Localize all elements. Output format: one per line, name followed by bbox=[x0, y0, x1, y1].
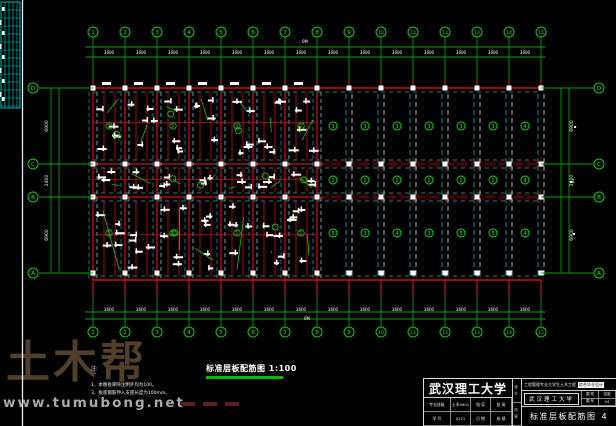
svg-text:13: 13 bbox=[474, 30, 480, 36]
svg-text:3600: 3600 bbox=[168, 50, 179, 55]
side-label-content: 内 容 bbox=[513, 403, 521, 426]
svg-text:3600: 3600 bbox=[136, 307, 147, 312]
notes-heading: 注: bbox=[91, 365, 170, 374]
svg-text:3600: 3600 bbox=[360, 50, 371, 55]
info-cell: 0121 bbox=[451, 412, 471, 426]
svg-text:4: 4 bbox=[395, 231, 398, 237]
svg-text:1: 1 bbox=[300, 231, 303, 236]
svg-text:11: 11 bbox=[410, 330, 416, 336]
svg-text:2: 2 bbox=[236, 124, 239, 129]
drawing-title-underline bbox=[206, 376, 283, 379]
svg-text:3600: 3600 bbox=[520, 307, 531, 312]
sheet-meta-cells: 图 别 结施 图 号 04 bbox=[581, 391, 616, 406]
svg-text:3: 3 bbox=[395, 124, 398, 130]
svg-text:3600: 3600 bbox=[488, 50, 499, 55]
svg-text:3: 3 bbox=[427, 124, 430, 130]
svg-text:3600: 3600 bbox=[232, 307, 243, 312]
svg-text:3600: 3600 bbox=[296, 307, 307, 312]
drawing-scale-label: 1:100 bbox=[269, 364, 297, 373]
sheet-title-row: 标准层板配筋图 4 bbox=[522, 407, 616, 426]
svg-text:2: 2 bbox=[300, 124, 303, 129]
svg-text:B: B bbox=[597, 195, 601, 201]
meta-cell: 结施 bbox=[599, 391, 616, 399]
svg-text:2: 2 bbox=[108, 124, 111, 129]
drawing-title: 标准层板配筋图 1:100 bbox=[206, 363, 297, 374]
svg-text:2: 2 bbox=[123, 330, 127, 336]
meta-cell: 04 bbox=[599, 399, 616, 407]
drawing-notes: 注: 1、本图板厚除注明外均为100。 3、板底钢筋伸入支座长度为100mm。 bbox=[91, 365, 170, 398]
svg-text:11: 11 bbox=[410, 30, 416, 36]
svg-text:3600: 3600 bbox=[520, 50, 531, 55]
title-block-info-grid: 专业班级 土木0901 指 导 批 阅 学 号 0121 日 期 成 绩 bbox=[424, 398, 512, 426]
cad-drawing-viewport: 土木帮 www.tumubong.net 3333334111111453435… bbox=[0, 0, 616, 426]
svg-text:3600: 3600 bbox=[264, 50, 275, 55]
svg-text:3600: 3600 bbox=[200, 50, 211, 55]
title-block-mid-row: 武汉理工大学 图 别 结施 图 号 04 bbox=[522, 391, 616, 407]
svg-text:3: 3 bbox=[331, 124, 334, 130]
svg-text:▪: ▪ bbox=[574, 124, 577, 129]
svg-text:3600: 3600 bbox=[360, 307, 371, 312]
info-cell: 土木0901 bbox=[451, 398, 471, 412]
svg-text:3600: 3600 bbox=[104, 50, 115, 55]
svg-text:3600: 3600 bbox=[200, 307, 211, 312]
svg-text:3600: 3600 bbox=[232, 50, 243, 55]
svg-text:1: 1 bbox=[172, 231, 175, 236]
svg-text:3600: 3600 bbox=[392, 50, 403, 55]
svg-text:1: 1 bbox=[91, 330, 95, 336]
svg-text:10: 10 bbox=[378, 30, 384, 36]
svg-text:12: 12 bbox=[442, 30, 448, 36]
svg-text:▪: ▪ bbox=[573, 231, 576, 236]
svg-text:A: A bbox=[31, 271, 35, 277]
svg-text:B: B bbox=[31, 195, 35, 201]
svg-text:3: 3 bbox=[363, 124, 366, 130]
info-cell: 学 号 bbox=[424, 412, 451, 426]
info-cell: 专业班级 bbox=[424, 398, 451, 412]
svg-text:3600: 3600 bbox=[456, 50, 467, 55]
svg-text:0M: 0M bbox=[302, 39, 309, 44]
svg-text:8: 8 bbox=[315, 30, 319, 36]
svg-text:4: 4 bbox=[187, 30, 191, 36]
svg-text:4: 4 bbox=[523, 178, 526, 184]
note-line: 1、本图板厚除注明外均为100。 bbox=[91, 382, 170, 390]
meta-cell: 图 别 bbox=[582, 391, 599, 399]
svg-text:3: 3 bbox=[459, 124, 462, 130]
svg-text:8: 8 bbox=[315, 330, 319, 336]
svg-text:5: 5 bbox=[459, 231, 462, 237]
svg-text:3: 3 bbox=[155, 330, 159, 336]
svg-text:3600: 3600 bbox=[264, 307, 275, 312]
svg-text:D: D bbox=[31, 86, 35, 92]
svg-text:4: 4 bbox=[187, 330, 191, 336]
svg-text:10: 10 bbox=[378, 330, 384, 336]
svg-text:1: 1 bbox=[236, 231, 239, 236]
svg-text:1: 1 bbox=[331, 178, 334, 184]
svg-text:3600: 3600 bbox=[424, 50, 435, 55]
title-block-right: 工程管理专业大学生土木工程 综合毕业设计 武汉理工大学 图 别 结施 图 号 0… bbox=[522, 379, 616, 426]
red-stamp-marks bbox=[181, 391, 247, 410]
svg-text:1: 1 bbox=[108, 231, 111, 236]
svg-text:5: 5 bbox=[219, 330, 223, 336]
svg-text:3600: 3600 bbox=[392, 307, 403, 312]
svg-text:1: 1 bbox=[91, 30, 95, 36]
svg-text:6: 6 bbox=[251, 330, 255, 336]
project-name-highlight: 综合毕业设计 bbox=[578, 382, 604, 388]
side-label-design: 设 计 bbox=[513, 379, 521, 403]
svg-text:3600: 3600 bbox=[296, 50, 307, 55]
svg-text:7: 7 bbox=[283, 30, 287, 36]
note-line: 3、板底钢筋伸入支座长度为100mm。 bbox=[91, 390, 170, 398]
svg-text:3600: 3600 bbox=[328, 50, 339, 55]
info-cell: 成 绩 bbox=[491, 412, 512, 426]
svg-text:1: 1 bbox=[363, 178, 366, 184]
svg-text:1: 1 bbox=[395, 178, 398, 184]
svg-text:2400: 2400 bbox=[44, 175, 50, 187]
project-name: 工程管理专业大学生土木工程 bbox=[524, 382, 576, 388]
svg-text:2: 2 bbox=[172, 124, 175, 129]
svg-text:5: 5 bbox=[331, 231, 334, 237]
svg-text:3600: 3600 bbox=[328, 307, 339, 312]
svg-text:5: 5 bbox=[491, 231, 494, 237]
svg-text:3: 3 bbox=[155, 30, 159, 36]
svg-text:15: 15 bbox=[538, 330, 544, 336]
svg-text:12: 12 bbox=[442, 330, 448, 336]
svg-text:3600: 3600 bbox=[424, 307, 435, 312]
svg-text:3600: 3600 bbox=[104, 307, 115, 312]
svg-text:3: 3 bbox=[427, 231, 430, 237]
svg-text:3600: 3600 bbox=[488, 307, 499, 312]
svg-text:1: 1 bbox=[491, 178, 494, 184]
sheet-title: 标准层板配筋图 bbox=[530, 411, 597, 422]
svg-text:1: 1 bbox=[459, 178, 462, 184]
svg-text:13: 13 bbox=[474, 330, 480, 336]
svg-text:1: 1 bbox=[427, 178, 430, 184]
svg-text:C: C bbox=[31, 162, 35, 168]
svg-text:6: 6 bbox=[251, 30, 255, 36]
svg-text:6900: 6900 bbox=[44, 120, 50, 132]
info-cell: 指 导 bbox=[471, 398, 491, 412]
svg-text:4: 4 bbox=[523, 231, 526, 237]
info-cell: 日 期 bbox=[471, 412, 491, 426]
svg-text:5: 5 bbox=[219, 30, 223, 36]
project-name-row: 工程管理专业大学生土木工程 综合毕业设计 bbox=[522, 379, 616, 391]
svg-text:6900: 6900 bbox=[44, 229, 50, 241]
svg-text:9: 9 bbox=[347, 30, 351, 36]
svg-text:A: A bbox=[597, 271, 601, 277]
university-name: 武汉理工大学 bbox=[424, 379, 512, 398]
title-block: 武汉理工大学 专业班级 土木0901 指 导 批 阅 学 号 0121 日 期 … bbox=[423, 378, 616, 426]
svg-text:7: 7 bbox=[283, 330, 287, 336]
title-block-left: 武汉理工大学 专业班级 土木0901 指 导 批 阅 学 号 0121 日 期 … bbox=[424, 379, 513, 426]
svg-text:C: C bbox=[597, 162, 601, 168]
svg-text:3600: 3600 bbox=[456, 307, 467, 312]
title-block-side-labels: 设 计 内 容 bbox=[513, 379, 522, 426]
svg-text:D: D bbox=[597, 86, 601, 92]
svg-text:14: 14 bbox=[506, 30, 512, 36]
svg-text:2: 2 bbox=[123, 30, 127, 36]
floor-plan-canvas: 3333334111111453435542222111136003600360… bbox=[0, 0, 616, 426]
svg-text:9: 9 bbox=[347, 330, 351, 336]
sheet-number: 4 bbox=[601, 412, 608, 421]
svg-text:▪1: ▪1 bbox=[569, 179, 575, 184]
svg-text:14: 14 bbox=[506, 330, 512, 336]
svg-text:3600: 3600 bbox=[136, 50, 147, 55]
school-box: 武汉理工大学 bbox=[524, 393, 579, 405]
drawing-title-text: 标准层板配筋图 bbox=[206, 364, 266, 373]
svg-text:4: 4 bbox=[523, 124, 526, 130]
svg-text:3: 3 bbox=[491, 124, 494, 130]
svg-text:3600: 3600 bbox=[168, 307, 179, 312]
svg-text:15: 15 bbox=[538, 30, 544, 36]
info-cell: 批 阅 bbox=[491, 398, 512, 412]
meta-cell: 图 号 bbox=[582, 399, 599, 407]
svg-text:3: 3 bbox=[363, 231, 366, 237]
svg-text:0M: 0M bbox=[304, 316, 311, 321]
